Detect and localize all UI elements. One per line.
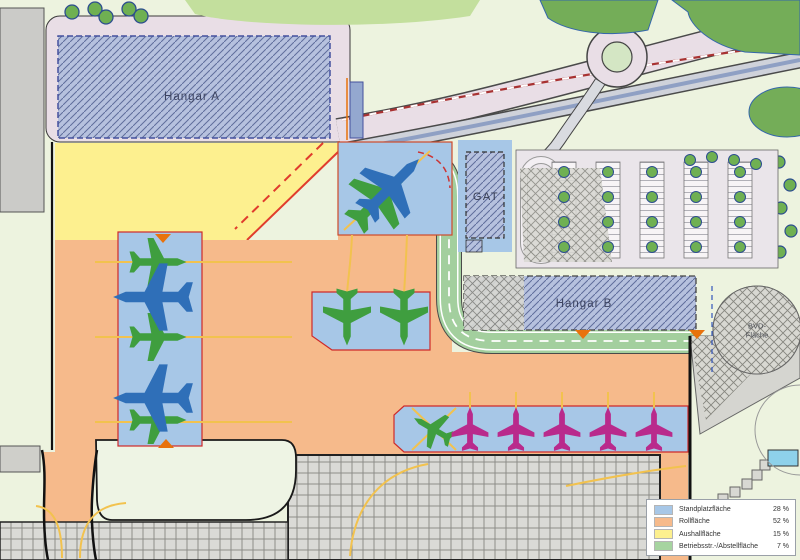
legend-item-standplatzflaeche: Standplatzfläche 28 % <box>654 504 789 515</box>
paver <box>752 470 762 480</box>
tree-icon <box>707 152 718 163</box>
paver <box>730 487 740 497</box>
legend-item-rollflaeche: Rollfläche 52 % <box>654 516 789 527</box>
tree-icon <box>735 192 746 203</box>
tree-icon <box>784 179 796 191</box>
tree-icon <box>691 192 702 203</box>
hangar-a-building <box>58 36 330 138</box>
legend-swatch-aushall <box>654 529 673 539</box>
legend-value: 28 % <box>763 506 789 513</box>
legend-label: Rollfläche <box>679 518 763 525</box>
west-road-strip <box>0 8 44 212</box>
tree-icon <box>691 217 702 228</box>
tree-icon <box>691 167 702 178</box>
tree-icon <box>729 155 740 166</box>
hangar-b-existing-part <box>464 276 524 330</box>
legend-value: 15 % <box>763 531 789 538</box>
tree-icon <box>99 10 113 24</box>
tree-icon <box>735 167 746 178</box>
legend-item-aushallflaeche: Aushallfläche 15 % <box>654 529 789 540</box>
tree-icon <box>691 242 702 253</box>
tree-icon <box>559 167 570 178</box>
tree-icon <box>785 225 797 237</box>
legend-swatch-roll <box>654 517 673 527</box>
tree-icon <box>735 242 746 253</box>
paver <box>742 479 752 489</box>
small-building-strip <box>350 82 363 138</box>
tree-icon <box>559 217 570 228</box>
gray-strip-southwest <box>0 446 40 472</box>
tree-icon <box>647 242 658 253</box>
grassy-island <box>96 440 296 520</box>
gat-annex <box>466 240 482 252</box>
tree-icon <box>603 167 614 178</box>
tree-icon <box>603 242 614 253</box>
pavement-slabs <box>0 440 660 560</box>
tree-icon <box>559 192 570 203</box>
slab-grid-main <box>288 455 660 560</box>
parking-lots <box>516 150 778 268</box>
gat-building <box>466 152 504 238</box>
airport-site-plan: Hangar A GAT Hangar B BVD-Fläche Standpl… <box>0 0 800 560</box>
roundabout-island <box>602 42 632 72</box>
tree-icon <box>603 217 614 228</box>
legend-swatch-stand <box>654 505 673 515</box>
site-plan-drawing <box>0 0 800 560</box>
bvd-area-circle <box>713 286 800 374</box>
legend-swatch-betrieb <box>654 541 673 551</box>
tree-icon <box>559 242 570 253</box>
legend-value: 7 % <box>763 543 789 550</box>
pond <box>768 450 798 466</box>
tree-icon <box>134 9 148 23</box>
tree-icon <box>647 167 658 178</box>
legend-label: Betriebsstr.-/Abstellfläche <box>679 543 763 550</box>
tree-icon <box>647 217 658 228</box>
tree-icon <box>65 5 79 19</box>
tree-icon <box>751 159 762 170</box>
legend-label: Standplatzfläche <box>679 506 763 513</box>
tree-icon <box>685 155 696 166</box>
tree-icon <box>603 192 614 203</box>
stand-area-center <box>312 292 430 350</box>
legend: Standplatzfläche 28 % Rollfläche 52 % Au… <box>646 499 796 556</box>
legend-value: 52 % <box>763 518 789 525</box>
legend-label: Aushallfläche <box>679 531 763 538</box>
legend-item-betriebsstrasse: Betriebsstr.-/Abstellfläche 7 % <box>654 541 789 552</box>
tree-icon <box>647 192 658 203</box>
tree-icon <box>735 217 746 228</box>
